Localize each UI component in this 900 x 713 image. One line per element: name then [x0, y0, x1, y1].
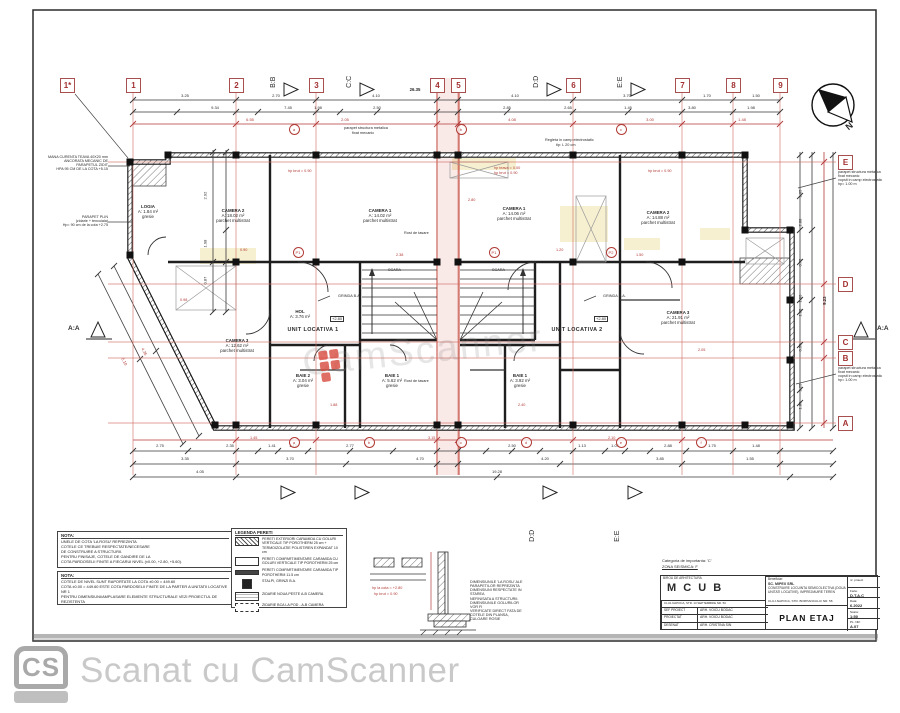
dim-label: 6.55	[246, 118, 254, 122]
dim-label: 1.48	[752, 444, 760, 448]
title-block: BIROU DE ARHITECTURA M C U B CLUJ-NAPOCA…	[660, 575, 878, 630]
aux-axis-marker: d	[521, 437, 532, 448]
section-marker-label: D:D	[533, 76, 541, 88]
annotation-label: SCARA	[492, 268, 505, 272]
detail-note-line: COTELE DIN PLANSA, CULOARE ROSIE	[470, 613, 526, 621]
detail-note-text: DIMENSIUNILE 'LA ROSU' ALEPARAPETILOR RE…	[470, 580, 526, 621]
p-marker: P2	[606, 247, 617, 258]
legend-item-text: PERETI COMPARTIMENTARE CARAMIDA CU GOLUR…	[262, 557, 343, 566]
grid-axis-2: 2	[229, 78, 244, 93]
sheet-title: PLAN ETAJ	[779, 613, 835, 623]
red-dim-note: 2.80	[468, 198, 475, 202]
dim-label: 1.98	[747, 106, 755, 110]
aux-axis-marker: b	[364, 437, 375, 448]
level-cote: +2.80	[594, 316, 608, 322]
red-dim-note: 3.15	[428, 436, 435, 440]
legend-item-text: PERETI COMPARTIMENTARE CARAMIDA TIP PORO…	[262, 568, 343, 577]
dim-label: 1.80	[799, 402, 803, 410]
grid-row-E: E	[838, 155, 853, 170]
dim-label: 1.50	[752, 94, 760, 98]
dim-label: 2.85	[503, 106, 511, 110]
annotation-label: Rost de tasare	[404, 379, 429, 383]
dim-label: 1.98	[204, 240, 208, 248]
camscanner-logo-cs: CS	[14, 646, 68, 689]
detail-red-label-1: hp la cota = +2.80	[372, 586, 402, 590]
signature-name: ARH. CRISTINA SIN	[697, 622, 768, 630]
north-label: N	[844, 120, 855, 132]
red-dim-note: 2.38	[396, 253, 403, 257]
room-label: CAMERA 1A: 14.06 m²parchet multistrat	[497, 207, 531, 222]
section-marker-label: A:A	[877, 325, 889, 332]
legend-box: LEGENDA PERETI PERETI EXTERIORI CARAMIDA…	[231, 528, 347, 608]
dim-label: 4.08	[508, 118, 516, 122]
grid-axis-1: 1	[126, 78, 141, 93]
annotation-label: tip: L 20 cm	[556, 143, 576, 147]
dim-label: 3.00	[646, 118, 654, 122]
red-dim-note: 1.20	[556, 248, 563, 252]
red-dim-note: 2.10	[608, 436, 615, 440]
aux-axis-marker: a	[289, 437, 300, 448]
red-dim-note: hp brut = 0.90	[288, 169, 312, 173]
dim-label: 0.87	[204, 277, 208, 285]
dim-label: 1.48	[738, 118, 746, 122]
section-marker-label: E:E	[617, 77, 625, 88]
note-line: PENTRU DIMENSIUNI/AMPLASARE ELEMENTE STR…	[61, 595, 229, 605]
room-label: CAMERA 2A: 14.88 m²parchet multistrat	[641, 211, 675, 226]
legend-item: PERETI COMPARTIMENTARE CARAMIDA TIP PORO…	[235, 568, 343, 577]
dim-label: 2.77	[346, 444, 354, 448]
dim-label: 0.75	[799, 259, 803, 267]
office-address: CLUJ-NAPOCA, STR. 13 SEPTEMBRIE NR. 50	[664, 602, 726, 605]
dim-label: 2.50	[508, 444, 516, 448]
dim-label: 2.05	[341, 118, 349, 122]
office-name: M C U B	[667, 582, 723, 594]
legend-item: ZIDARIE NOUA PESTE A-B CAMERA	[235, 592, 343, 601]
dim-label: 4.05	[196, 470, 204, 474]
grid-axis-8: 8	[726, 78, 741, 93]
camscanner-logo-bar	[14, 691, 68, 703]
section-marker-label: A:A	[68, 325, 80, 332]
dim-label: 2.75	[156, 444, 164, 448]
tb-cell-value: A.07	[850, 624, 880, 629]
overall-dim: 9.23	[823, 296, 828, 304]
legend-item: STALPI, GRINZI B.A.	[235, 579, 343, 589]
dim-label: 1.13	[578, 444, 586, 448]
annotation-label: SCARA	[388, 268, 401, 272]
office-type: BIROU DE ARHITECTURA	[663, 577, 702, 581]
annotation-label: GRINDA B.A.	[338, 294, 361, 298]
room-label: LOGIAA: 1.84 m²gresie	[138, 205, 158, 220]
dim-label: 1.41	[268, 444, 276, 448]
note-line: COTA PARDOSELII FINITE A FIECARUI NIVEL …	[61, 560, 229, 565]
dim-label: 2.25	[799, 384, 803, 392]
dim-label: 5.10	[120, 357, 128, 366]
level-cote: +2.80	[330, 316, 344, 322]
aux-axis-marker: a	[289, 124, 300, 135]
red-dim-note: hp teava = 0.00	[494, 166, 520, 170]
dim-label: 3.70	[623, 94, 631, 98]
section-marker-label: B:B	[270, 77, 278, 88]
red-dim-note: 1.45	[250, 436, 257, 440]
project-title: CONSTRUIRE LOCUINTA SEMICOLECTIVA (DOUA …	[768, 587, 846, 594]
legend-item: ZIDARIE BCA LA POD - A-B CAMERA	[235, 603, 343, 612]
detail-note-line: DIMENSIUNILE GOLURILOR VOR FI	[470, 601, 526, 609]
red-dim-note: 2.40	[518, 403, 525, 407]
scanned-floor-plan-page: CamScanner 1*123456789EDCBAB:BC:CD:DE:EB…	[0, 0, 900, 713]
legend-swatch-zid1	[235, 592, 259, 601]
dim-label: 1.98	[314, 106, 322, 110]
dim-label: 3.70	[286, 457, 294, 461]
dim-label: 9.34	[211, 106, 219, 110]
dim-label: 1.70	[703, 94, 711, 98]
section-marker-label: C:C	[346, 76, 354, 88]
dim-label: 0.50	[799, 344, 803, 352]
red-dim-note: hp brut = 0.90	[494, 171, 518, 175]
annotation-block: MANA CURENTA TEAVA 40X20 mmANCORATA MECA…	[34, 155, 108, 172]
section-marker-label: E:E	[614, 531, 622, 542]
legend-title: LEGENDA PERETI	[235, 530, 343, 536]
red-dim-note: hp brut = 0.90	[648, 169, 672, 173]
grid-axis-4: 4	[430, 78, 445, 93]
dim-label: 2.50	[373, 106, 381, 110]
legend-item: PERETI EXTERIORI CARAMIDA CU GOLURI VERT…	[235, 537, 343, 554]
detail-red-label-2: hp brut = 0.90	[374, 592, 398, 596]
dim-label: 4.35	[140, 347, 148, 356]
grid-axis-5: 5	[451, 78, 466, 93]
dim-label: 7.45	[284, 106, 292, 110]
aux-axis-marker: c	[616, 124, 627, 135]
aux-axis-marker: c	[456, 437, 467, 448]
legend-item: PERETI COMPARTIMENTARE CARAMIDA CU GOLUR…	[235, 557, 343, 566]
importance-category: Categoria de importanta: 'C'	[662, 559, 712, 563]
signature-role: DESENAT	[661, 622, 700, 630]
dim-label: 2.88	[664, 444, 672, 448]
dim-label: 2.70	[272, 94, 280, 98]
seismic-zone: ZONA SEISMICA: F	[662, 565, 698, 569]
grid-axis-7: 7	[675, 78, 690, 93]
detail-note-line: DIMENSIUNI RESPECTATE IN STAREA	[470, 588, 526, 596]
aux-axis-marker: b	[456, 124, 467, 135]
grid-row-C: C	[838, 335, 853, 350]
nota-box-2: NOTA: COTELE DE NIVEL SUNT RAPORTATE LA …	[57, 571, 233, 605]
aux-axis-marker: f	[696, 437, 707, 448]
annotation-label: Rost de tasare	[404, 231, 429, 235]
dim-label: 2.35	[226, 444, 234, 448]
unit-label: UNIT LOCATIVA 1	[287, 327, 338, 333]
red-dim-note: 0.90	[240, 248, 247, 252]
nota-box-1: NOTA: UNELE DE COTA 'LA ROSU' REPREZINTA…	[57, 531, 233, 568]
grid-row-B: B	[838, 351, 853, 366]
grid-row-A: A	[838, 416, 853, 431]
room-label: BAIE 1A: 3.92 m²gresie	[510, 374, 530, 389]
dim-label: 3.80	[688, 106, 696, 110]
grid-row-D: D	[838, 277, 853, 292]
room-label: CAMERA 3A: 21.91 m²parchet multistrat	[661, 311, 695, 326]
annotation-label: GRINDA B.A.	[603, 294, 626, 298]
annotation-block: parapet structura metalicafixat mecanicv…	[838, 366, 894, 383]
room-label: BAIE 2A: 3.04 m²gresie	[293, 374, 313, 389]
legend-item-text: PERETI EXTERIORI CARAMIDA CU GOLURI VERT…	[262, 537, 343, 554]
dim-label: 3.35	[181, 457, 189, 461]
grid-axis-9: 9	[773, 78, 788, 93]
tb-cell-label: nr. proiect	[850, 578, 880, 582]
legend-item-text: STALPI, GRINZI B.A.	[262, 579, 296, 583]
dim-label: 1.85	[799, 309, 803, 317]
tb-right-cell: PL. NR:A.07	[847, 618, 880, 631]
dim-label: 4.20	[541, 457, 549, 461]
dim-label: 4.70	[416, 457, 424, 461]
camscanner-caption: Scanat cu CamScanner	[80, 651, 460, 691]
p-marker: P1	[489, 247, 500, 258]
legend-swatch-zid2	[235, 603, 259, 612]
dim-label: 2.92	[204, 192, 208, 200]
dim-label: 1.45	[624, 106, 632, 110]
legend-swatch-ext	[235, 537, 259, 546]
section-marker-label: D:D	[529, 530, 537, 542]
dim-label: 1.05	[799, 190, 803, 198]
annotation-label: Regleta in camp electrostatic	[545, 138, 594, 142]
annotation-label: fixat mecanic	[352, 131, 374, 135]
overall-dim: 26.35	[410, 88, 421, 93]
dim-label: 3.85	[656, 457, 664, 461]
red-dim-note: 0.98	[180, 298, 187, 302]
dim-label: 2.88	[799, 219, 803, 227]
room-label: CAMERA 1A: 14.02 m²parchet multistrat	[363, 209, 397, 224]
dim-label: 1.55	[746, 457, 754, 461]
dim-label: 3.25	[181, 94, 189, 98]
dim-label: 1.90	[799, 295, 803, 303]
legend-swatch-stalp	[242, 579, 252, 589]
annotation-label: parapet structura metalica	[344, 126, 388, 130]
room-label: BAIE 1A: 5.62 m²gresie	[382, 374, 402, 389]
dim-label: 19.28	[492, 470, 502, 474]
grid-axis-6: 6	[566, 78, 581, 93]
camscanner-logo: CS	[14, 646, 68, 702]
dim-label: 1.75	[708, 444, 716, 448]
project-address: CLUJ-NAPOCA, STR. BORHANCULUI NR. 58	[768, 600, 832, 603]
dim-label: 4.10	[511, 94, 519, 98]
legend-swatch-int11	[235, 570, 259, 575]
grid-axis-1: 1*	[60, 78, 75, 93]
room-label: CAMERA 3A: 12.62 m²parchet multistrat	[220, 339, 254, 354]
legend-item-text: ZIDARIE NOUA PESTE A-B CAMERA	[262, 592, 323, 596]
red-dim-note: 1.88	[330, 403, 337, 407]
p-marker: P1	[293, 247, 304, 258]
grid-axis-3: 3	[309, 78, 324, 93]
dim-label: 4.10	[372, 94, 380, 98]
aux-axis-marker: e	[616, 437, 627, 448]
legend-swatch-int25	[235, 557, 259, 566]
red-dim-note: 2.05	[698, 348, 705, 352]
red-dim-note: 1.50	[636, 253, 643, 257]
legend-item-text: ZIDARIE BCA LA POD - A-B CAMERA	[262, 603, 324, 607]
annotation-block: parapet structura metalicafixat mecanicv…	[838, 170, 894, 187]
room-label: HOLA: 3.76 m²	[290, 310, 310, 320]
unit-label: UNIT LOCATIVA 2	[551, 327, 602, 333]
room-label: CAMERA 2A: 18.02 m²parchet multistrat	[216, 209, 250, 224]
annotation-block: PARAPET PLIN(zidarie + tencuiala)Hp= 90 …	[38, 215, 108, 227]
dim-label: 2.65	[564, 106, 572, 110]
